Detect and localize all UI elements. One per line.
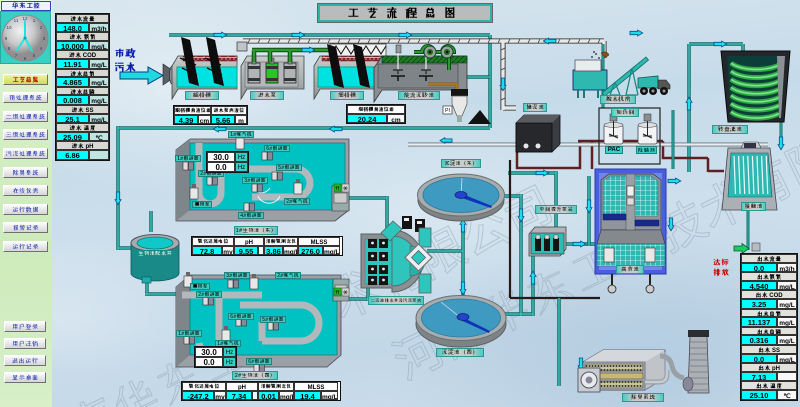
svg-text:关: 关 bbox=[343, 290, 349, 296]
svg-text:开: 开 bbox=[335, 186, 341, 192]
svg-text:PI: PI bbox=[445, 108, 450, 114]
svg-text:关: 关 bbox=[343, 186, 349, 192]
svg-text:10: 10 bbox=[6, 25, 12, 30]
svg-text:开: 开 bbox=[335, 290, 341, 296]
svg-text:11: 11 bbox=[14, 18, 19, 23]
